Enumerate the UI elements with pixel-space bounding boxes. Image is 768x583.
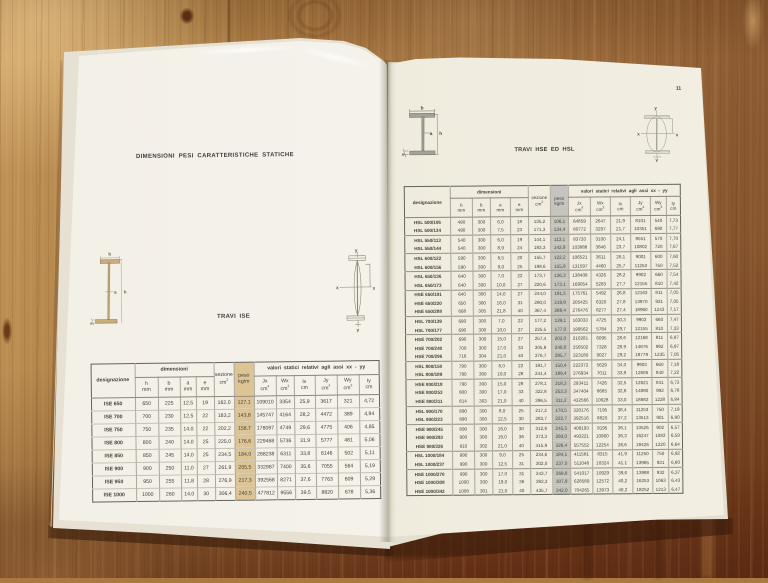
- svg-text:h: h: [439, 131, 442, 137]
- svg-text:x: x: [676, 132, 679, 137]
- svg-text:y: y: [655, 157, 658, 162]
- svg-text:b: b: [421, 106, 424, 112]
- svg-text:x: x: [637, 132, 640, 137]
- svg-text:y: y: [654, 105, 657, 110]
- svg-text:a: a: [430, 132, 433, 137]
